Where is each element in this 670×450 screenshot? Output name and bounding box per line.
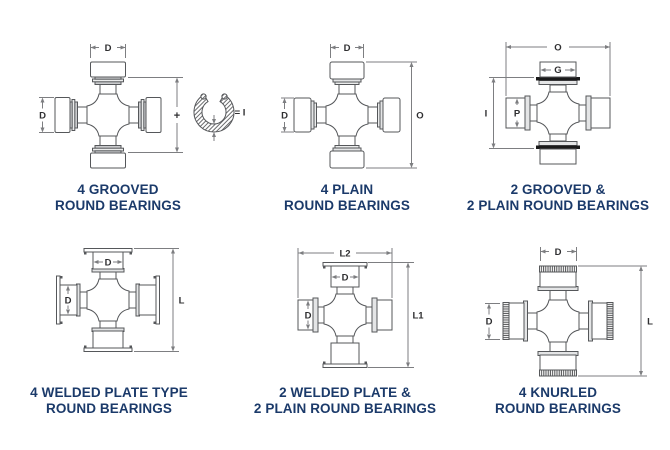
caption-line1: 2 WELDED PLATE & [279, 385, 411, 400]
bearing-cup-top [330, 62, 364, 96]
welded-cup-left [57, 276, 90, 324]
dimension-d-top: D [541, 247, 577, 261]
caption-line2: 2 PLAIN ROUND BEARINGS [467, 198, 649, 213]
plain-cup-left [506, 96, 539, 130]
dim-label-l: L [179, 296, 185, 307]
bearing-cup-right [366, 98, 400, 132]
dim-label-l1: L1 [412, 311, 424, 322]
cross-assembly-knurled [503, 266, 613, 376]
bearing-cup-left [294, 98, 328, 132]
dim-label-d-left: D [486, 317, 493, 328]
snap-ring-icon [194, 94, 234, 141]
bearing-cup-bottom [91, 134, 126, 168]
dim-label-plus: + [174, 110, 180, 122]
caption-line2: 2 PLAIN ROUND BEARINGS [254, 401, 436, 416]
dim-label-d-left: D [281, 111, 288, 122]
dim-label-p: P [514, 109, 521, 120]
dimension-d-top: D [91, 43, 126, 58]
bearing-types-diagram: D D + = I 4 GROOVED ROUND BEARINGS [0, 0, 670, 450]
figure-4-grooved-round-bearings: D D + = I 4 GROOVED ROUND BEARINGS [39, 43, 245, 213]
figure-4-knurled-round-bearings: D D L 4 KNURLED ROUND BEARINGS [485, 247, 653, 416]
dim-label-d-left: D [305, 311, 312, 322]
dim-label-d-top: D [555, 247, 562, 258]
dim-label-equals-i: = I [235, 108, 246, 119]
grooved-cup-bottom [536, 132, 580, 164]
cross-assembly-plain [294, 62, 400, 168]
knurled-cup-left [503, 301, 539, 341]
cross-hub [537, 92, 579, 134]
welded-cup-bottom [84, 319, 132, 352]
cross-hub [87, 279, 129, 321]
dim-label-o: O [554, 43, 561, 54]
cross-hub [326, 94, 368, 136]
dimension-d-left: D [39, 98, 54, 133]
dim-label-l2: L2 [339, 249, 350, 260]
dim-label-d-left: D [65, 296, 72, 307]
caption-line1: 2 GROOVED & [511, 182, 606, 197]
figure-4-plain-round-bearings: D D O 4 PLAIN ROUND BEARINGS [281, 43, 424, 213]
dim-label-d-cup: D [342, 273, 349, 284]
bearing-cup-right [127, 98, 161, 133]
caption-line2: ROUND BEARINGS [495, 401, 621, 416]
figure-2-grooved-2-plain-round-bearings: O G I P 2 GROOVED & 2 PLAIN ROUND BEARIN… [467, 42, 649, 213]
bearing-cup-left [55, 98, 89, 133]
figure-2-welded-2-plain-round-bearings: L2 D D L1 2 WELDED PLATE & 2 PLAIN ROUND… [254, 248, 436, 416]
cross-hub [537, 300, 579, 342]
figure-4-welded-plate-round-bearings: D D L 4 WELDED PLATE TYPE ROUND BEARINGS [30, 249, 188, 417]
dimension-d-top: D [331, 43, 364, 58]
dimension-d-left: D [281, 98, 294, 132]
dim-label-l: L [647, 317, 653, 328]
diagram-sheet: D D + = I 4 GROOVED ROUND BEARINGS [0, 0, 670, 450]
welded-cup-bottom [323, 334, 367, 368]
caption-line1: 4 GROOVED [77, 182, 158, 197]
plain-cup-right [364, 298, 392, 332]
cross-hub [324, 294, 366, 336]
dim-label-d-left: D [39, 111, 46, 122]
dimension-d-left: D [485, 304, 500, 340]
caption-line2: ROUND BEARINGS [284, 198, 410, 213]
knurled-cup-right [577, 301, 613, 341]
knurled-cup-bottom [538, 340, 578, 376]
caption-line1: 4 KNURLED [519, 385, 597, 400]
dim-label-g: G [554, 65, 561, 76]
dim-label-i: I [485, 109, 488, 120]
cross-hub [87, 94, 129, 136]
dim-label-d-top: D [105, 258, 112, 269]
plain-cup-right [577, 96, 610, 130]
caption-line2: ROUND BEARINGS [46, 401, 172, 416]
dim-label-o: O [416, 111, 423, 122]
bearing-cup-top [91, 62, 126, 96]
dim-label-d-top: D [105, 43, 112, 54]
caption-line2: ROUND BEARINGS [55, 198, 181, 213]
caption-line1: 4 WELDED PLATE TYPE [30, 385, 188, 400]
caption-line1: 4 PLAIN [321, 182, 373, 197]
plain-cup-left [298, 298, 326, 332]
knurled-cup-top [538, 266, 578, 302]
bearing-cup-bottom [330, 134, 364, 168]
welded-cup-right [127, 276, 160, 324]
dim-label-d-top: D [344, 43, 351, 54]
